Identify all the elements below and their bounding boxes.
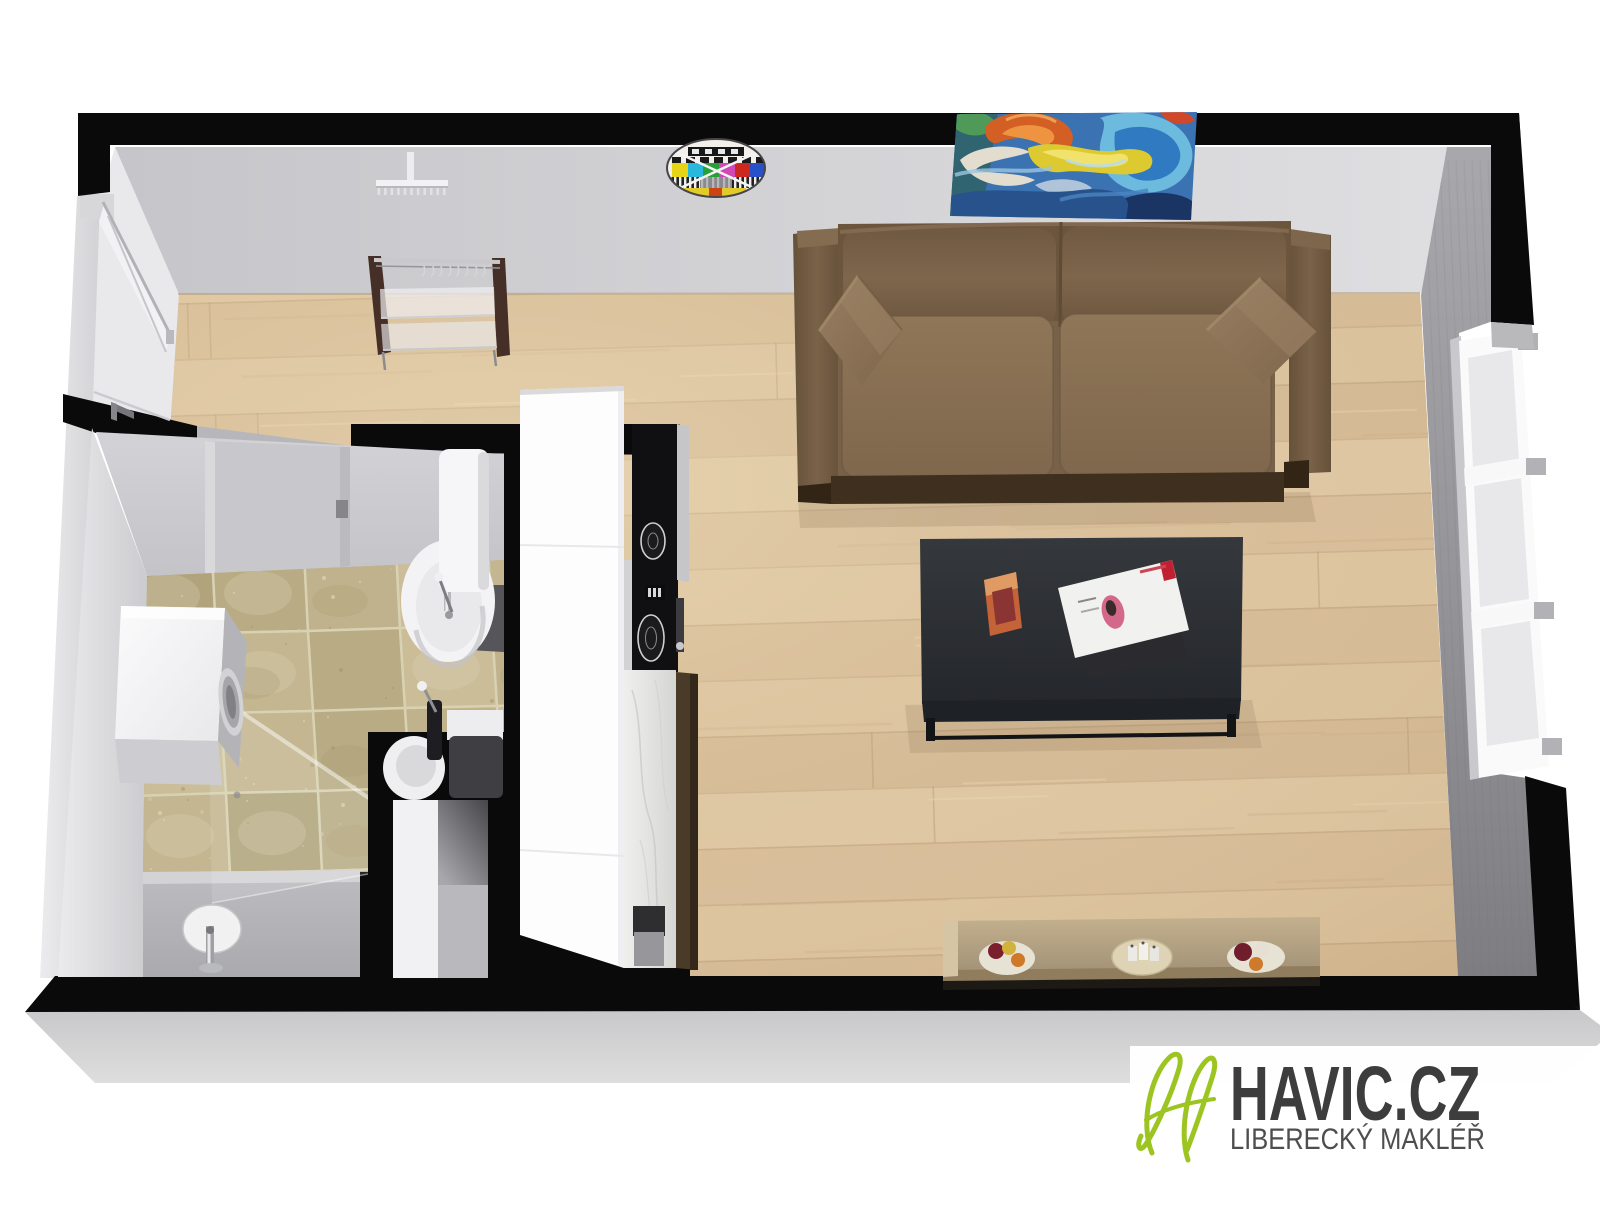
svg-text:LIBERECKÝ MAKLÉŘ: LIBERECKÝ MAKLÉŘ bbox=[1230, 1122, 1485, 1155]
